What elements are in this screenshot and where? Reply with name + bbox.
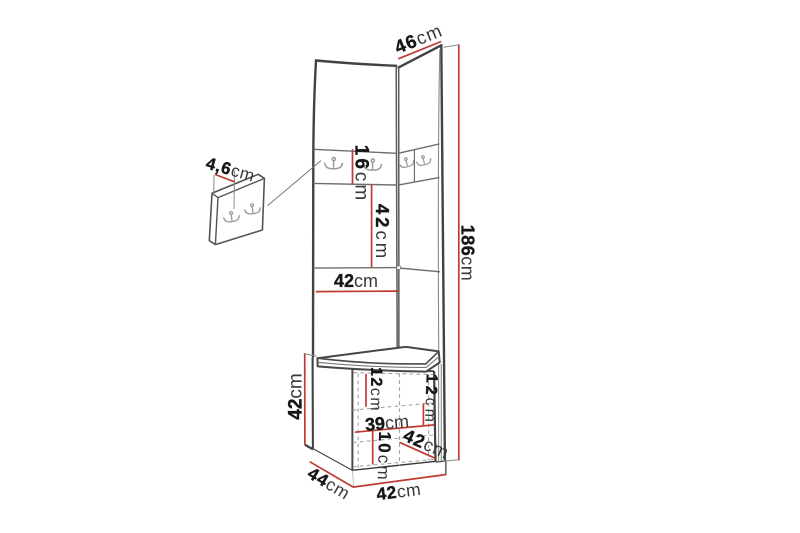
svg-text:16cm: 16cm	[350, 145, 371, 203]
svg-text:12cm: 12cm	[421, 374, 440, 426]
svg-text:12cm: 12cm	[367, 367, 385, 412]
svg-text:10cm: 10cm	[374, 431, 395, 482]
svg-text:42cm: 42cm	[372, 204, 393, 261]
svg-text:42cm: 42cm	[286, 373, 307, 419]
svg-text:186cm: 186cm	[458, 225, 478, 282]
svg-text:42cm: 42cm	[334, 271, 378, 291]
